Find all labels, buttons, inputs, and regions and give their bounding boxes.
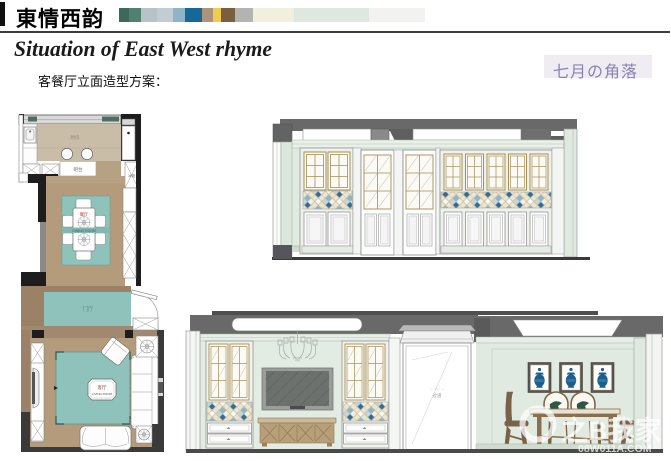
svg-text:08W011A.COM: 08W011A.COM xyxy=(578,443,652,455)
svg-text:DINING ROOM: DINING ROOM xyxy=(72,229,96,233)
svg-text:之B我家: 之B我家 xyxy=(561,415,662,446)
svg-text:客厅: 客厅 xyxy=(98,384,107,391)
svg-text:LIVING ROOM: LIVING ROOM xyxy=(92,392,113,396)
svg-text:过道: 过道 xyxy=(433,392,442,399)
svg-text:←·—·→: ←·—·→ xyxy=(430,386,445,391)
svg-text:门厅: 门厅 xyxy=(82,305,94,313)
svg-text:吧台: 吧台 xyxy=(74,166,83,173)
svg-text:厨房: 厨房 xyxy=(70,134,80,141)
svg-text:冰箱: 冰箱 xyxy=(128,173,136,178)
